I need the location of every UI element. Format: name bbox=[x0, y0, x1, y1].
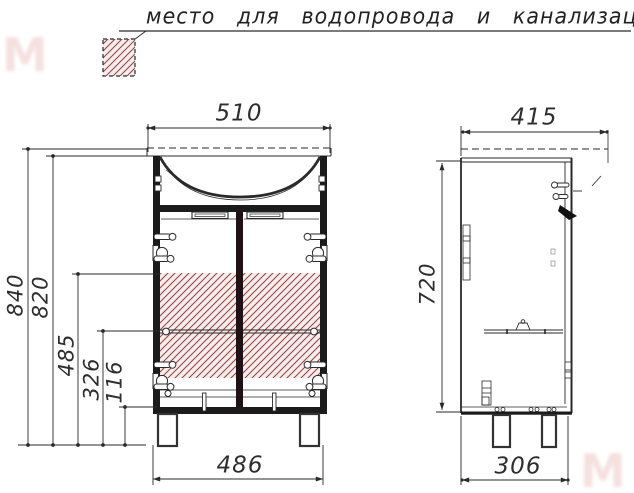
hinge-screws-icon bbox=[552, 182, 583, 200]
watermark-logo: M bbox=[2, 28, 44, 82]
technical-drawing-vanity-cabinet: место для водопровода и канализации 510 … bbox=[0, 0, 634, 493]
shelf-side-line bbox=[484, 320, 563, 334]
door-handle-icon bbox=[247, 212, 283, 219]
door-direction-arrow-icon bbox=[558, 205, 577, 220]
dim-width-top-label: 510 bbox=[216, 103, 263, 126]
drawing-canvas bbox=[0, 0, 634, 493]
dim-plinth-label: 116 bbox=[105, 360, 126, 403]
drain-bracket bbox=[482, 381, 491, 405]
dim-width-bottom-label: 486 bbox=[217, 455, 264, 478]
legend-hatch-swatch bbox=[103, 39, 135, 76]
center-divider bbox=[236, 212, 243, 407]
cabinet-leg bbox=[158, 414, 177, 446]
dim-height-body-label: 720 bbox=[418, 262, 439, 305]
cabinet-leg bbox=[542, 415, 556, 447]
dim-depth-top-label: 415 bbox=[511, 107, 558, 130]
dim-height-cabinet-label: 820 bbox=[31, 275, 52, 318]
sink-basin bbox=[160, 157, 320, 200]
cabinet-leg bbox=[300, 414, 319, 446]
side-view-drawing bbox=[461, 130, 608, 447]
dim-hatch-top-label: 485 bbox=[57, 333, 78, 376]
title-block bbox=[103, 31, 631, 76]
back-mounting-rail bbox=[463, 225, 470, 280]
front-view-drawing bbox=[147, 148, 331, 446]
dim-height-total-label: 840 bbox=[6, 273, 27, 316]
watermark-logo: M bbox=[580, 444, 622, 493]
dim-shelf-label: 326 bbox=[82, 357, 103, 400]
door-handle-icon bbox=[192, 212, 228, 219]
drawing-title: место для водопровода и канализации bbox=[146, 5, 634, 27]
dim-depth-bottom-label: 306 bbox=[495, 456, 542, 479]
cabinet-leg bbox=[493, 415, 510, 447]
